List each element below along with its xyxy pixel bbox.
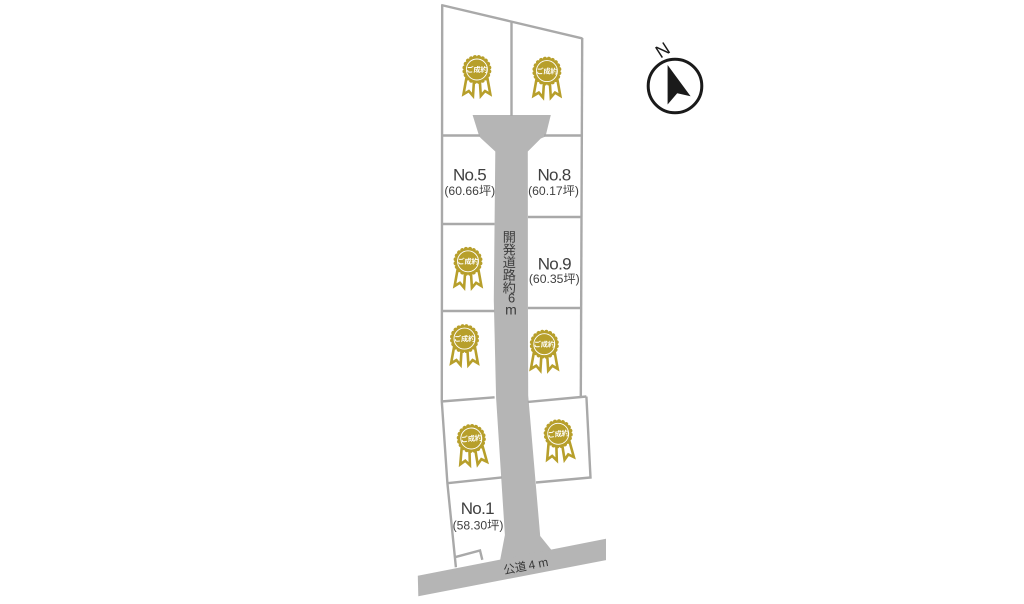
svg-text:(58.30: (58.30: [453, 519, 488, 533]
svg-text:No.5: No.5: [453, 165, 486, 184]
svg-text:(60.66: (60.66: [444, 184, 479, 198]
svg-text:m: m: [505, 302, 517, 318]
svg-text:(60.17: (60.17: [528, 184, 563, 198]
svg-text:): ): [491, 184, 495, 198]
svg-text:No.9: No.9: [538, 254, 571, 273]
svg-text:(60.35: (60.35: [529, 272, 564, 286]
svg-text:): ): [499, 519, 503, 533]
svg-text:): ): [575, 184, 579, 198]
svg-text:No.1: No.1: [461, 499, 494, 518]
svg-text:No.8: No.8: [537, 165, 570, 184]
svg-text:): ): [576, 272, 580, 286]
